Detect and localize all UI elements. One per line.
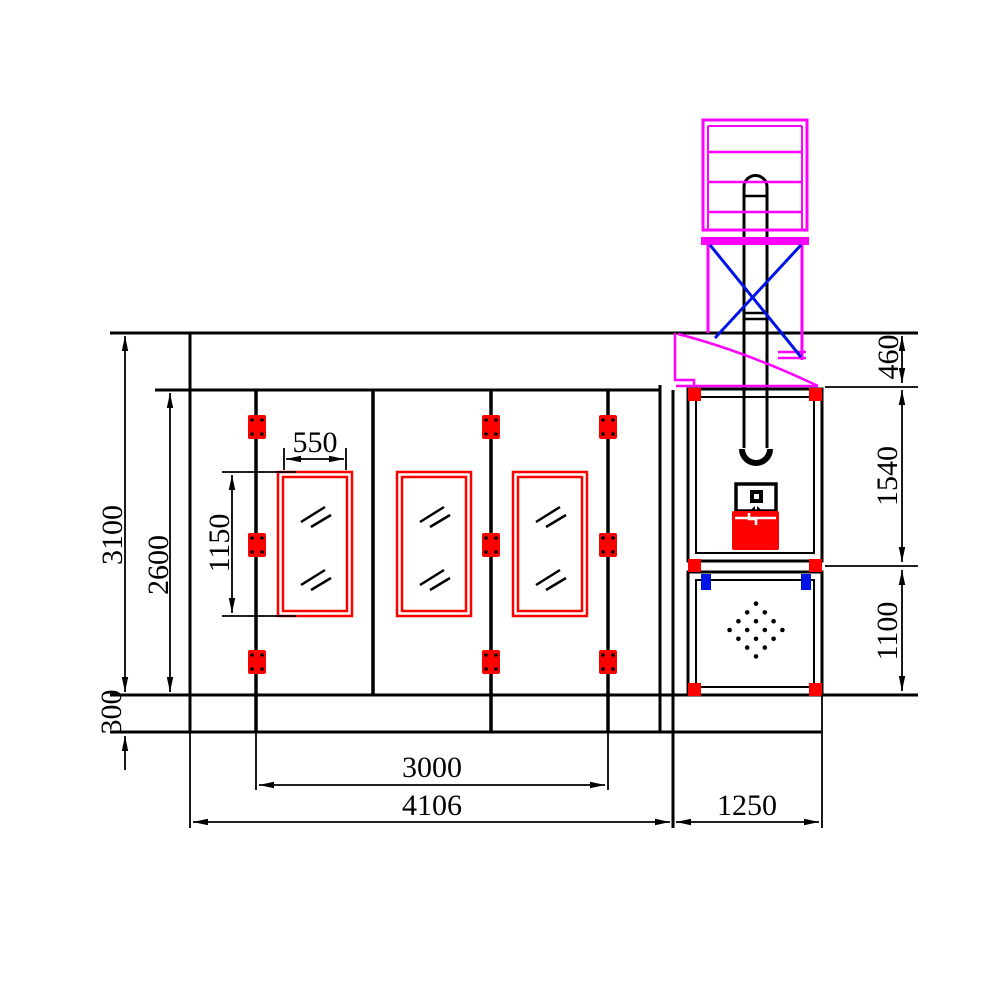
stack-flange	[701, 237, 809, 245]
hinge	[599, 415, 617, 439]
exhaust-stack-tower	[675, 120, 818, 386]
exhaust-pipe	[742, 176, 770, 464]
transition-left-wall	[675, 333, 694, 386]
filter-section-outer	[688, 572, 822, 695]
drawing-canvas: 3100 2600 1150 550 300 3000 4106 1250 46…	[0, 0, 1000, 1000]
hinge	[248, 533, 266, 557]
pipe-cap	[744, 176, 767, 198]
transition-curve	[678, 334, 818, 386]
duct-transition	[675, 333, 818, 386]
door-window-3	[513, 472, 587, 616]
glass-hatch	[536, 507, 566, 590]
hinge	[248, 415, 266, 439]
dim-label-window-height: 1150	[203, 514, 236, 573]
pipe-u-bend	[742, 449, 770, 463]
hinge	[599, 533, 617, 557]
filter-clips	[701, 574, 811, 590]
door-windows	[278, 472, 587, 616]
machine-cabinet	[688, 388, 822, 696]
dim-label-fan-section: 1540	[871, 446, 904, 506]
dim-label-base-height: 300	[95, 690, 128, 735]
fan-motor-unit	[732, 484, 779, 550]
dimensions: 3100 2600 1150 550 300 3000 4106 1250 46…	[95, 335, 918, 829]
booth-elevation-drawing: 3100 2600 1150 550 300 3000 4106 1250 46…	[0, 0, 1000, 1000]
glass-hatch	[301, 507, 331, 590]
door-window-1	[278, 472, 352, 616]
dim-label-bay-width: 1250	[717, 789, 777, 822]
hinge	[482, 533, 500, 557]
door-window-2	[397, 472, 471, 616]
dim-label-door-span: 3000	[402, 751, 462, 784]
filter-section-inner	[696, 580, 814, 687]
hinge	[482, 650, 500, 674]
dim-label-door-height: 2600	[142, 535, 175, 595]
dim-label-total-height: 3100	[96, 505, 129, 565]
cross-brace	[710, 245, 801, 357]
hinge	[599, 650, 617, 674]
dim-label-total-width: 4106	[402, 789, 462, 822]
hinge	[248, 650, 266, 674]
hinge	[482, 415, 500, 439]
air-grille-dots	[727, 601, 784, 658]
dim-label-filter-section: 1100	[871, 602, 904, 661]
dim-label-window-width: 550	[293, 426, 338, 459]
glass-hatch	[420, 507, 450, 590]
dim-label-duct-height: 460	[872, 335, 905, 380]
